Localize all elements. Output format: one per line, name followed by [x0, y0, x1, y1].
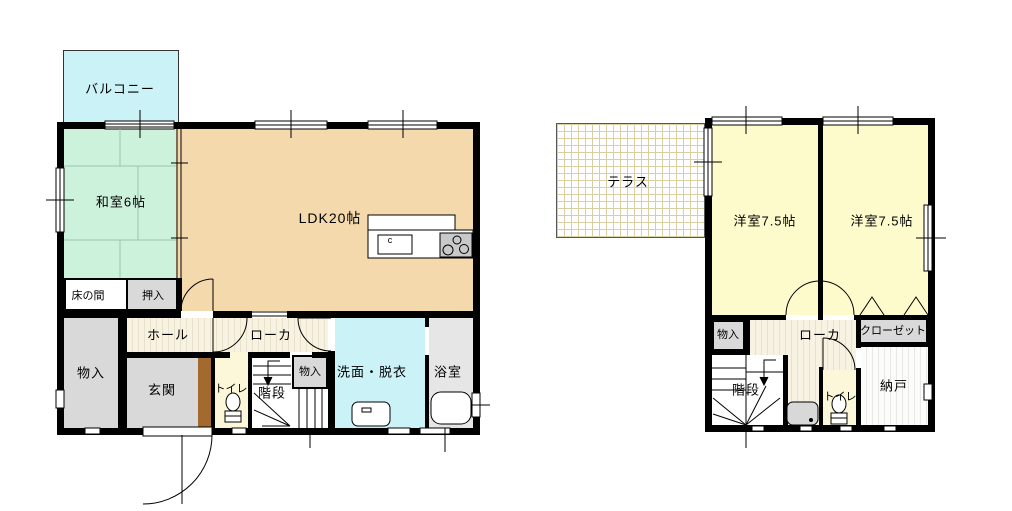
- label-stairs-2f: 階段: [732, 380, 760, 399]
- label-storage-left: 物入: [77, 363, 105, 382]
- label-toilet-2f: トイレ: [824, 388, 857, 404]
- label-storage-room: 納戸: [880, 376, 908, 395]
- wall: [213, 311, 252, 318]
- label-bedroom-2: 洋室7.5帖: [850, 211, 913, 230]
- label-entrance: 玄関: [148, 380, 176, 399]
- label-storage-2f: 物入: [717, 326, 739, 342]
- label-washroom: 洗面・脱衣: [337, 362, 407, 381]
- label-bathroom: 浴室: [434, 362, 462, 381]
- wall: [745, 320, 750, 355]
- label-bedroom-1: 洋室7.5帖: [733, 211, 796, 230]
- label-stairs-1f: 階段: [258, 383, 286, 402]
- label-corridor-1f: ローカ: [250, 325, 292, 344]
- label-tokonoma: 床の間: [72, 287, 105, 303]
- wall: [287, 311, 480, 318]
- floor-plan-canvas: バルコニー 和室6帖 LDK20帖 床の間 押入 ホール ローカ 物入 玄関 ト…: [0, 0, 1012, 511]
- label-storage-stairs: 物入: [299, 363, 321, 379]
- label-ldk: LDK20帖: [299, 208, 362, 228]
- wall: [57, 311, 181, 318]
- wall: [425, 318, 429, 327]
- wall: [712, 351, 750, 355]
- label-hall: ホール: [147, 325, 189, 344]
- wall: [328, 351, 335, 428]
- wall: [856, 343, 928, 347]
- wall: [783, 355, 788, 425]
- label-corridor-2f: ローカ: [799, 325, 841, 344]
- wall: [248, 352, 252, 428]
- wall: [818, 125, 823, 320]
- wall: [252, 352, 290, 358]
- wall: [176, 278, 182, 311]
- label-oshiire: 押入: [142, 287, 164, 303]
- wall: [425, 355, 429, 428]
- label-sink-mark: c: [388, 235, 393, 245]
- entrance-step: [198, 352, 211, 428]
- wall: [854, 315, 935, 320]
- wall: [819, 367, 823, 425]
- label-toilet-1f: トイレ: [215, 380, 248, 396]
- wall: [856, 368, 861, 425]
- label-japanese-room: 和室6帖: [96, 192, 146, 211]
- wall: [118, 318, 127, 428]
- label-balcony: バルコニー: [85, 79, 155, 98]
- label-terrace: テラス: [607, 172, 649, 191]
- label-closet: クローゼット: [860, 322, 926, 338]
